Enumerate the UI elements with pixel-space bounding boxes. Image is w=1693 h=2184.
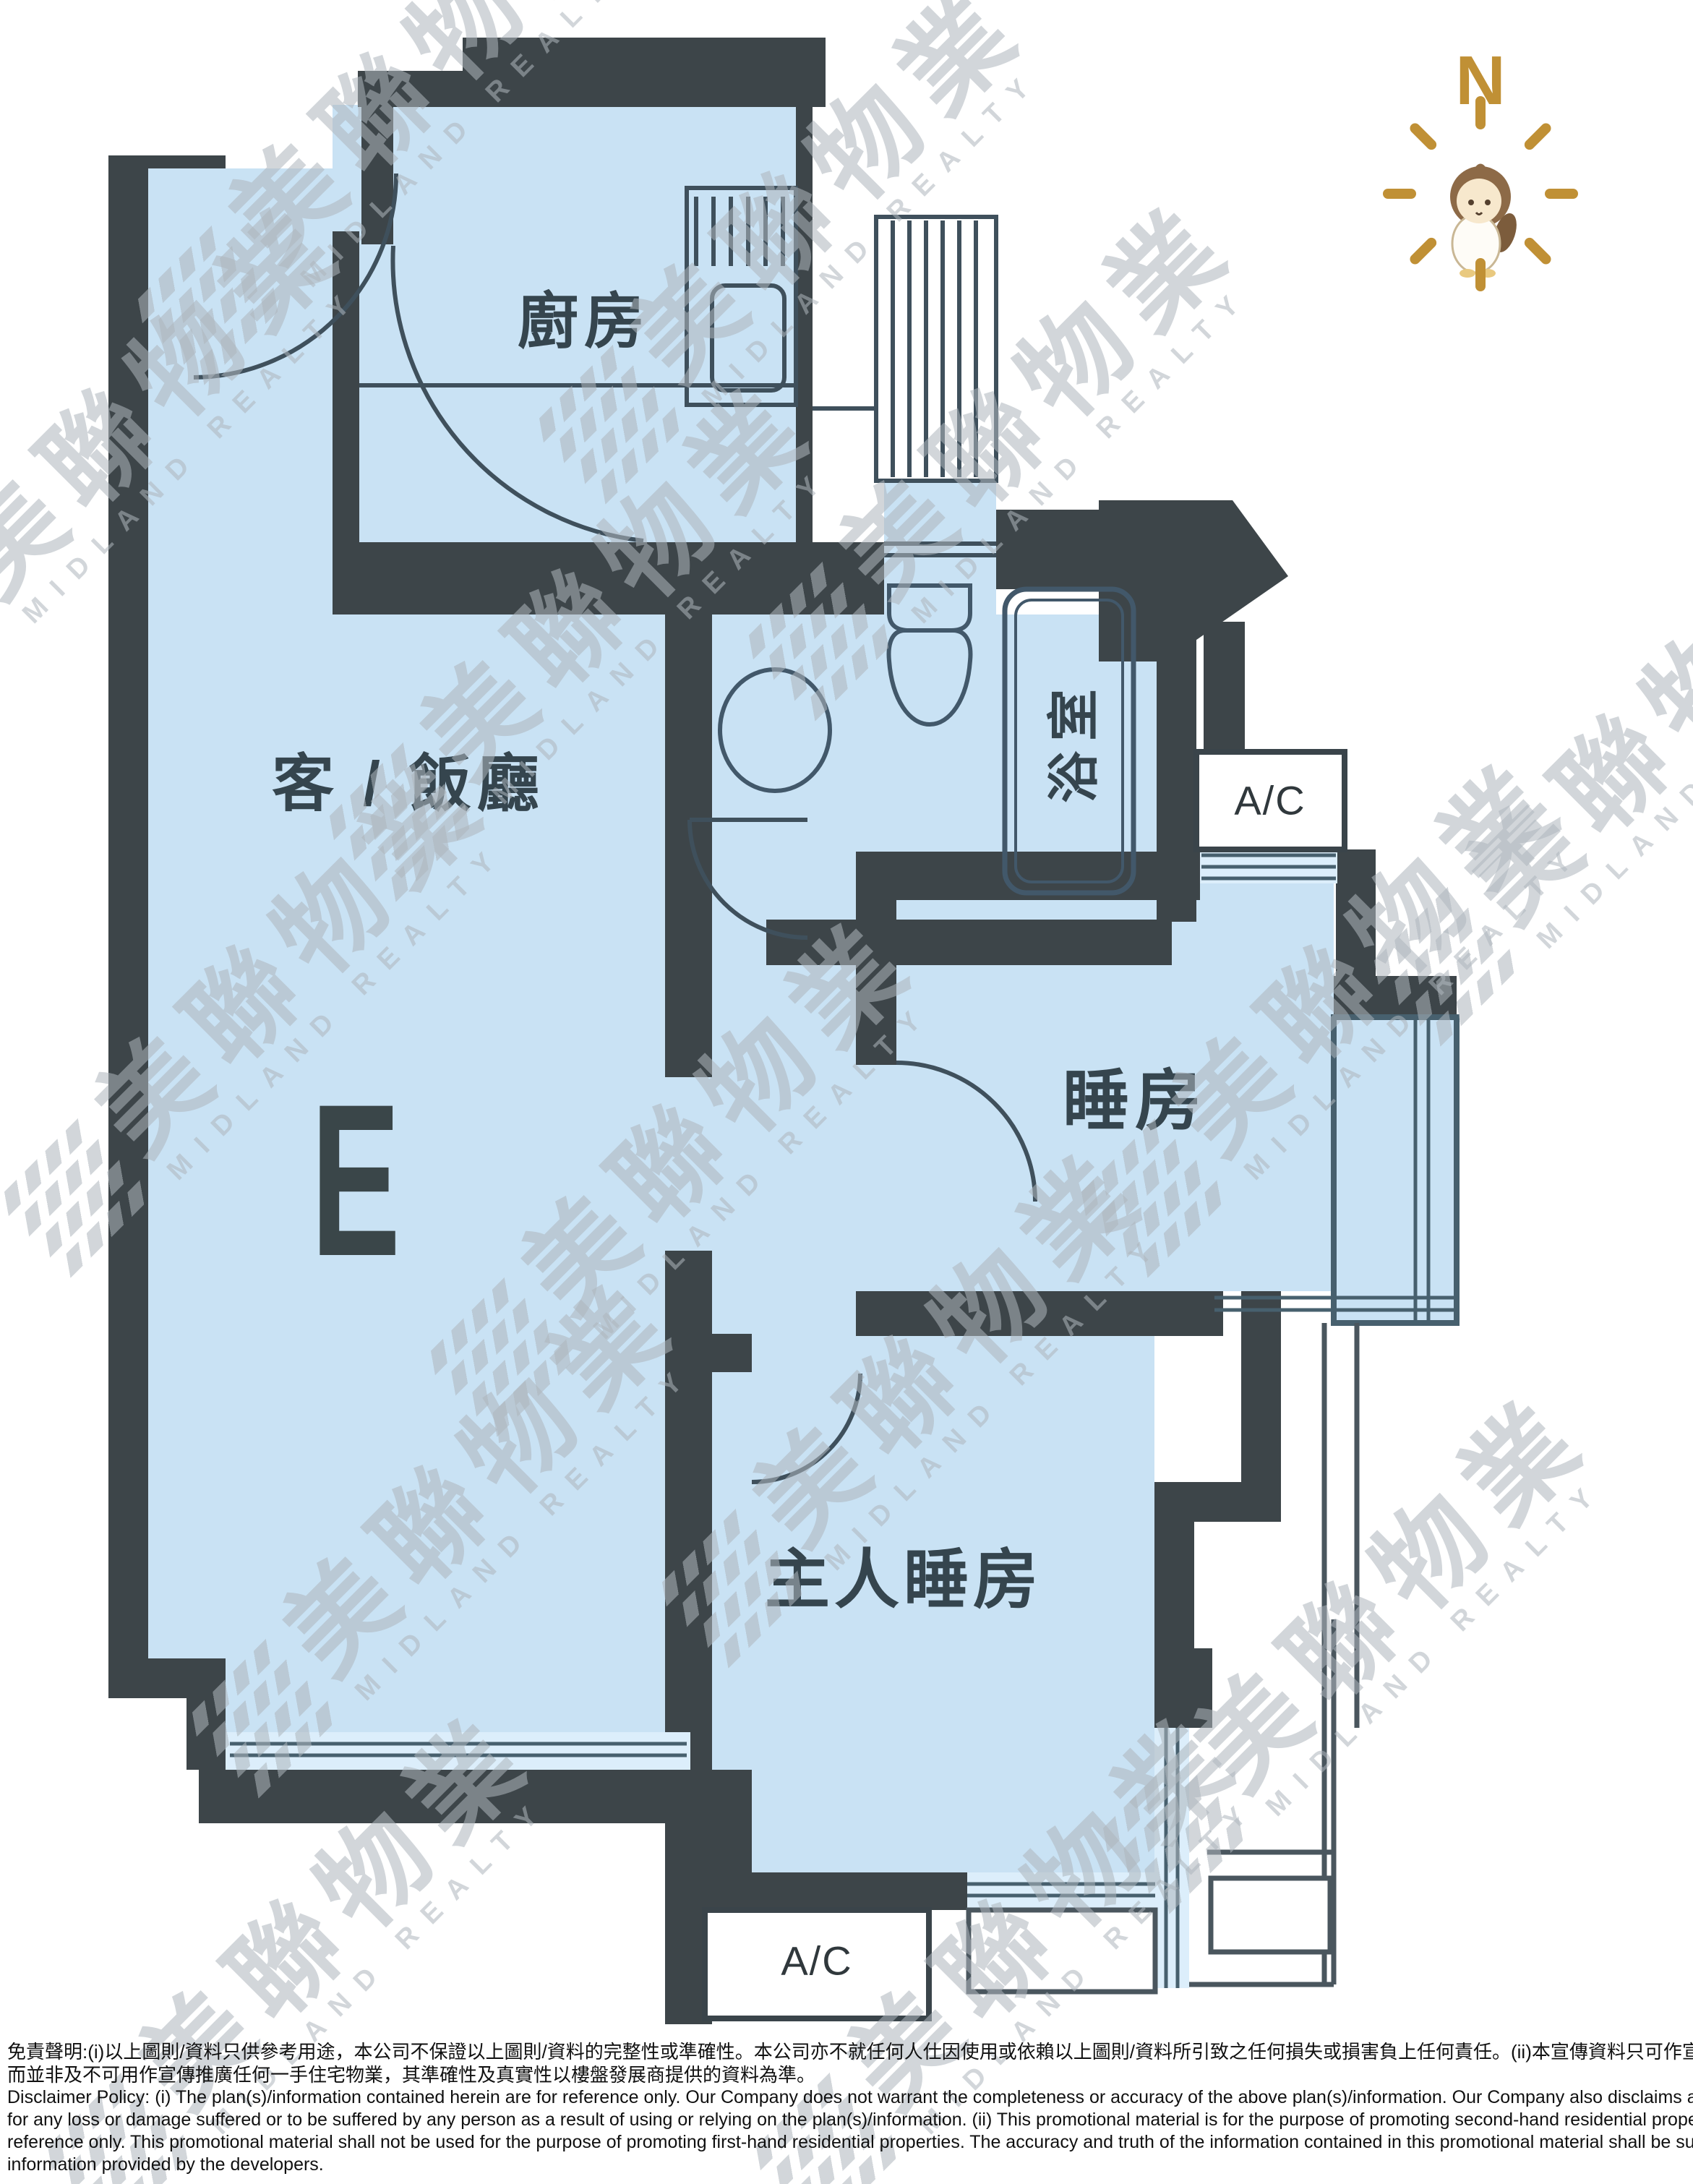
floor-plan-drawing: [0, 0, 1693, 2184]
bathroom-label: 浴室: [1032, 679, 1107, 803]
compass-tick-icon: [1475, 258, 1486, 291]
unit-label: E: [311, 1055, 400, 1305]
toilet-nook-floor: [884, 481, 996, 614]
living-dining-label: 客 / 飯廳: [272, 733, 545, 823]
bay-window-floor: [1334, 1017, 1457, 1323]
compass-tick-icon: [1383, 189, 1416, 199]
kitchen-label: 廚房: [518, 273, 651, 361]
disclaimer-zh-line: 而並非及不可用作宣傳推廣任何一手住宅物業，其準確性及真實性以樓盤發展商提供的資料…: [7, 2063, 1689, 2086]
master-bedroom-label: 主人睡房: [765, 1527, 1042, 1621]
disclaimer-en-line: Disclaimer Policy: (i) The plan(s)/infor…: [7, 2086, 1689, 2109]
ac-label-bottom: A/C: [781, 1937, 852, 1984]
compass-tick-icon: [1475, 96, 1486, 129]
compass-mascot: [1450, 166, 1521, 278]
ac-label-top: A/C: [1234, 777, 1306, 824]
disclaimer-zh-line: 免責聲明:(i)以上圖則/資料只供參考用途，本公司不保證以上圖則/資料的完整性或…: [7, 2040, 1689, 2063]
disclaimer: 免責聲明:(i)以上圖則/資料只供參考用途，本公司不保證以上圖則/資料的完整性或…: [7, 2040, 1689, 2176]
bedroom-label: 睡房: [1063, 1048, 1207, 1144]
floor-plan-page: 美聯物業 MIDLAND REALTY 美聯物業 MIDLAND REALTY …: [0, 0, 1693, 2184]
disclaimer-en-line: information provided by the developers.: [7, 2154, 1689, 2176]
disclaimer-en-line: for any loss or damage suffered or to be…: [7, 2109, 1689, 2131]
compass-tick-icon: [1545, 189, 1578, 199]
mascot-face: [1457, 179, 1501, 223]
disclaimer-en-line: reference only. This promotional materia…: [7, 2131, 1689, 2154]
